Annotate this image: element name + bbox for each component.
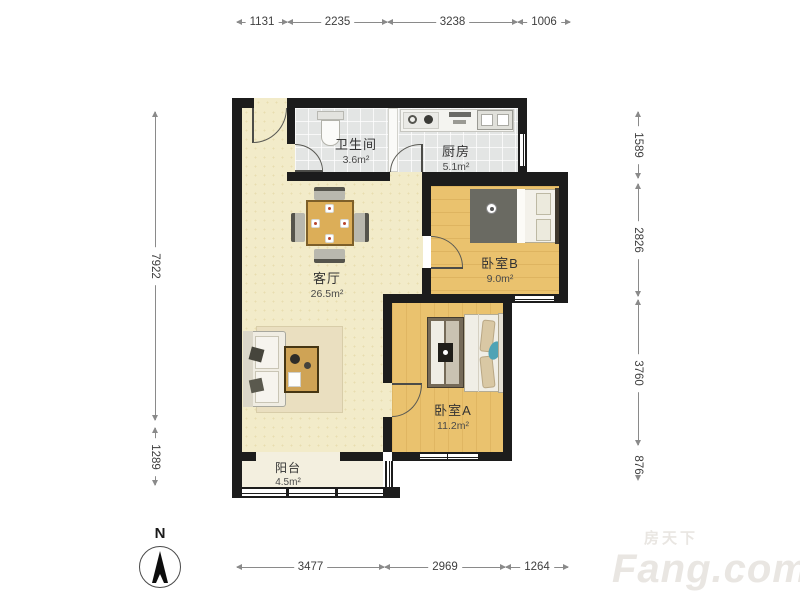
- floor-entry-threshold: [254, 98, 287, 108]
- wall: [287, 172, 390, 181]
- tv-icon-dot: [443, 350, 448, 355]
- watermark: 房天下 Fang.com: [612, 527, 798, 590]
- watermark-brand-cn: 房天下: [612, 527, 798, 548]
- dimension-value: 3477: [294, 561, 328, 573]
- dimension-top-4: 1006: [518, 22, 570, 23]
- dining-chair: [314, 249, 345, 263]
- wall: [287, 98, 527, 108]
- throw-pillow: [249, 378, 264, 393]
- wall: [478, 452, 512, 461]
- bed-b-duvet: [470, 189, 517, 243]
- dimension-value: 2969: [428, 561, 462, 573]
- place-setting: [325, 204, 334, 213]
- place-setting: [311, 219, 320, 228]
- window-balcony-side: [385, 461, 393, 487]
- dimension-value: 7922: [149, 247, 161, 285]
- window-balcony-glazing: [242, 487, 383, 498]
- wall: [232, 98, 242, 498]
- dining-chair: [291, 213, 305, 242]
- wall: [340, 452, 383, 461]
- wall: [287, 108, 295, 144]
- window-bedroom-a: [420, 452, 478, 461]
- dimension-bottom-1: 3477: [237, 567, 384, 568]
- window-kitchen: [518, 134, 527, 166]
- dimension-left-2: 1289: [155, 428, 156, 485]
- range-hood-icon: [449, 112, 471, 117]
- wall: [518, 98, 527, 134]
- wall: [559, 186, 568, 303]
- bed-b-sheet-fold: [517, 189, 525, 243]
- wall: [392, 452, 420, 461]
- dimension-right-4: 876: [638, 450, 639, 480]
- north-arrow-notch: [156, 574, 164, 583]
- dimension-top-1: 1131: [237, 22, 287, 23]
- wall: [383, 417, 392, 452]
- sink-basin: [497, 114, 509, 126]
- dimension-value: 1589: [632, 126, 644, 164]
- wall: [422, 172, 568, 186]
- wall: [422, 268, 431, 294]
- dimension-value: 1006: [527, 16, 561, 28]
- watermark-brand-en: Fang.com: [612, 548, 798, 590]
- dining-chair: [354, 213, 369, 242]
- phone-icon-dot: [490, 207, 494, 211]
- north-label: N: [139, 525, 181, 542]
- wall: [383, 303, 392, 383]
- dimension-value: 3238: [436, 16, 470, 28]
- dimension-right-3: 3760: [638, 300, 639, 445]
- stove-burner-icon: [424, 115, 433, 124]
- window-bedroom-b: [515, 294, 554, 303]
- dimension-value: 1131: [246, 16, 279, 28]
- kitchen-door-leaf: [421, 144, 423, 172]
- dimension-value: 2235: [321, 16, 355, 28]
- dimension-value: 2826: [632, 221, 644, 259]
- wall: [383, 487, 400, 498]
- dimension-bottom-3: 1264: [506, 567, 568, 568]
- place-setting: [340, 219, 349, 228]
- pillow: [536, 219, 551, 241]
- dimension-left-1: 7922: [155, 112, 156, 420]
- wall: [422, 186, 431, 236]
- toilet-tank: [317, 111, 344, 120]
- wall: [242, 452, 256, 461]
- range-hood-icon: [453, 120, 466, 124]
- floor-plan-canvas: 卫生间 3.6m² 厨房 5.1m² 客厅 26.5m² 卧室B 9.0m² 卧…: [0, 0, 800, 600]
- kettle-icon: [290, 354, 300, 364]
- pillow: [536, 193, 551, 215]
- wall: [383, 294, 515, 303]
- toilet-bowl: [321, 120, 340, 146]
- place-setting: [325, 234, 334, 243]
- dimension-right-1: 1589: [638, 112, 639, 178]
- dimension-value: 1264: [520, 561, 554, 573]
- notepad-icon: [288, 372, 301, 387]
- bowl-icon: [304, 362, 311, 369]
- wall: [503, 303, 512, 461]
- wall: [554, 294, 568, 303]
- dimension-value: 3760: [632, 354, 644, 392]
- dining-chair: [314, 187, 345, 200]
- dimension-top-2: 2235: [288, 22, 387, 23]
- sink-basin: [481, 114, 493, 126]
- bed-a-fold-line: [478, 314, 479, 392]
- stove-burner-icon: [408, 115, 417, 124]
- sofa-back: [243, 331, 253, 407]
- dimension-value: 1289: [149, 438, 161, 476]
- dimension-right-2: 2826: [638, 184, 639, 296]
- bedroom-b-door-leaf: [431, 267, 463, 269]
- dimension-value: 876: [632, 449, 644, 480]
- dimension-bottom-2: 2969: [385, 567, 505, 568]
- dimension-top-3: 3238: [388, 22, 517, 23]
